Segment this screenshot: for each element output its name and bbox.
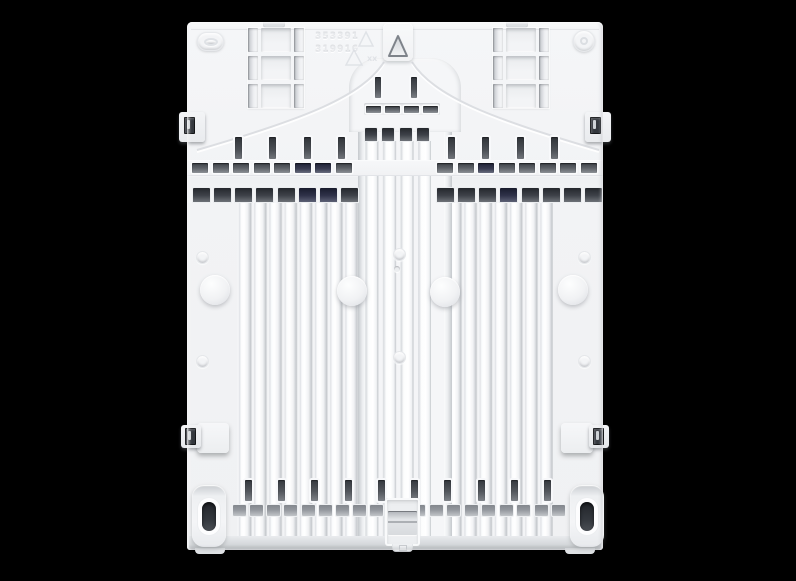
- marker-tab: [383, 23, 413, 61]
- bottom-tab: [267, 505, 280, 516]
- boss-dome: [200, 275, 230, 305]
- vent-slot: [478, 163, 494, 173]
- oval-foot-right: [570, 485, 604, 547]
- vent-slot: [315, 163, 331, 173]
- center-vertical-slots: [375, 77, 417, 98]
- rib-cap: [543, 188, 560, 202]
- ladder-cell: [506, 84, 536, 108]
- bottom-tab: [552, 505, 565, 516]
- rib-cap: [500, 188, 517, 202]
- vent-slot: [540, 163, 556, 173]
- rib-cap: [256, 188, 273, 202]
- ladder-cell: [261, 84, 291, 108]
- vent-slot: [437, 163, 453, 173]
- vertical-slot: [311, 480, 318, 501]
- rib-cap: [437, 188, 454, 202]
- vertical-slot: [444, 480, 451, 501]
- rib-cap: [235, 188, 252, 202]
- oval-foot-left: [192, 485, 226, 547]
- alignment-arrow-icon: [387, 34, 409, 58]
- bottom-tab: [447, 505, 460, 516]
- vertical-slot: [551, 137, 558, 159]
- foot-right: [565, 548, 595, 554]
- oval-hole: [580, 502, 594, 531]
- vent-slot: [274, 163, 290, 173]
- rib-cap: [458, 188, 475, 202]
- groove-segment: [493, 84, 503, 108]
- groove-segment: [248, 28, 258, 52]
- vent-slot: [295, 163, 311, 173]
- rib-cap: [564, 188, 581, 202]
- boss-dome: [337, 276, 367, 306]
- circle-emblem-dot: [580, 37, 588, 45]
- recycling-triangle-icon: [346, 50, 362, 65]
- vertical-slot: [245, 480, 252, 501]
- recycle-code-label: xx: [367, 54, 378, 63]
- boss-ring-small: [196, 355, 209, 368]
- boss-ring-small: [196, 251, 209, 264]
- vent-slot: [519, 163, 535, 173]
- bottom-tab: [353, 505, 366, 516]
- photo-background: 353391 319916 xx: [0, 0, 796, 581]
- vent-slot: [560, 163, 576, 173]
- vent-slot: [581, 163, 597, 173]
- bottom-tab: [250, 505, 263, 516]
- bottom-tab: [500, 505, 513, 516]
- clip-slot: [593, 428, 604, 445]
- vertical-slot: [482, 137, 489, 159]
- groove-segment: [248, 56, 258, 80]
- bottom-latch: [385, 498, 420, 546]
- ladder-cell: [261, 28, 291, 52]
- ladder-groove: [248, 28, 258, 108]
- boss-dome: [558, 275, 588, 305]
- side-clip-upper-right: [585, 112, 611, 142]
- channel-cap-row: [365, 128, 429, 141]
- clip-slot: [185, 428, 196, 445]
- vertical-slot: [511, 480, 518, 501]
- rib-cap: [365, 128, 377, 141]
- rib-cap: [320, 188, 337, 202]
- rib-cap: [193, 188, 210, 202]
- strip-slot: [423, 106, 438, 113]
- bottom-tab: [302, 505, 315, 516]
- bottom-tab: [370, 505, 383, 516]
- groove-segment: [539, 28, 549, 52]
- vent-slot: [254, 163, 270, 173]
- vent-row-left: [192, 162, 352, 173]
- plastic-panel: 353391 319916 xx: [187, 22, 603, 550]
- vertical-slot: [378, 480, 385, 501]
- vertical-slot: [411, 77, 417, 98]
- vertical-slot: [278, 480, 285, 501]
- bottom-tab-row-left: [233, 505, 383, 516]
- rib-cap: [522, 188, 539, 202]
- boss-dot: [394, 266, 400, 272]
- vertical-slot: [375, 77, 381, 98]
- bottom-tab: [535, 505, 548, 516]
- foot-left: [195, 548, 225, 554]
- groove-segment: [539, 84, 549, 108]
- vent-slot: [233, 163, 249, 173]
- groove-segment: [294, 28, 304, 52]
- pill-emblem-ring: [204, 38, 218, 46]
- rib-cap: [382, 128, 394, 141]
- side-clip-lower-left: [181, 425, 201, 448]
- ladder-cells: [261, 28, 291, 108]
- groove-segment: [248, 84, 258, 108]
- side-clip-lower-right: [589, 425, 609, 448]
- bottom-tab: [233, 505, 246, 516]
- vertical-slot: [448, 137, 455, 159]
- rib-cap: [341, 188, 358, 202]
- channel-ribs: [365, 141, 431, 536]
- strip-slot: [404, 106, 419, 113]
- bottom-tab: [336, 505, 349, 516]
- rib-cap: [417, 128, 429, 141]
- boss-ring-small: [393, 248, 406, 261]
- groove-segment: [493, 28, 503, 52]
- bottom-tab: [319, 505, 332, 516]
- center-foot-tab: [392, 544, 413, 552]
- bottom-tab: [465, 505, 478, 516]
- bottom-tab: [430, 505, 443, 516]
- rib-cap-row-left: [193, 188, 358, 202]
- recycling-triangle-icon: [359, 32, 373, 46]
- latch-slider: [388, 511, 417, 535]
- boss-ring-small: [393, 351, 406, 364]
- vertical-slot: [517, 137, 524, 159]
- rib-cap: [214, 188, 231, 202]
- circle-emblem: [573, 30, 595, 52]
- rib-cap: [400, 128, 412, 141]
- vent-slot: [458, 163, 474, 173]
- oval-hole: [202, 502, 216, 531]
- clip-block-lower-left: [197, 423, 229, 453]
- rib-cap: [585, 188, 602, 202]
- mid-vslot-row-right: [448, 137, 558, 159]
- strip-slot: [366, 106, 381, 113]
- boss-ring-small: [578, 355, 591, 368]
- groove-segment: [539, 56, 549, 80]
- side-clip-upper-left: [179, 112, 205, 142]
- rib-cap-row-right: [437, 188, 602, 202]
- ladder-groove: [294, 28, 304, 108]
- vent-slot: [499, 163, 515, 173]
- bottom-tab: [482, 505, 495, 516]
- vertical-slot: [544, 480, 551, 501]
- boss-dome: [430, 277, 460, 307]
- clip-slot: [590, 117, 601, 134]
- ladder-groove: [493, 28, 503, 108]
- ladder-cells: [506, 28, 536, 108]
- ladder-grid-left: [248, 28, 304, 108]
- vent-row-right: [437, 162, 597, 173]
- groove-segment: [294, 84, 304, 108]
- groove-segment: [493, 56, 503, 80]
- rib-cap: [278, 188, 295, 202]
- ladder-groove: [539, 28, 549, 108]
- ladder-cell: [261, 56, 291, 80]
- clip-slot: [184, 117, 195, 134]
- bottom-tab: [517, 505, 530, 516]
- bottom-tab-row-right: [412, 505, 565, 516]
- pill-emblem: [197, 32, 224, 51]
- mid-vslot-row-left: [235, 137, 345, 159]
- vertical-slot: [269, 137, 276, 159]
- vent-slot: [213, 163, 229, 173]
- rib-cap: [299, 188, 316, 202]
- strip-slot: [385, 106, 400, 113]
- vent-slot: [192, 163, 208, 173]
- vent-slot: [336, 163, 352, 173]
- vertical-slot: [478, 480, 485, 501]
- vertical-slot: [304, 137, 311, 159]
- ladder-cell: [506, 28, 536, 52]
- groove-segment: [294, 56, 304, 80]
- rib-cap: [479, 188, 496, 202]
- bottom-tab: [284, 505, 297, 516]
- ladder-cell: [506, 56, 536, 80]
- boss-ring-small: [578, 251, 591, 264]
- ladder-grid-right: [493, 28, 549, 108]
- vertical-slot: [345, 480, 352, 501]
- vertical-slot: [235, 137, 242, 159]
- vertical-slot: [338, 137, 345, 159]
- center-strip: [364, 103, 440, 115]
